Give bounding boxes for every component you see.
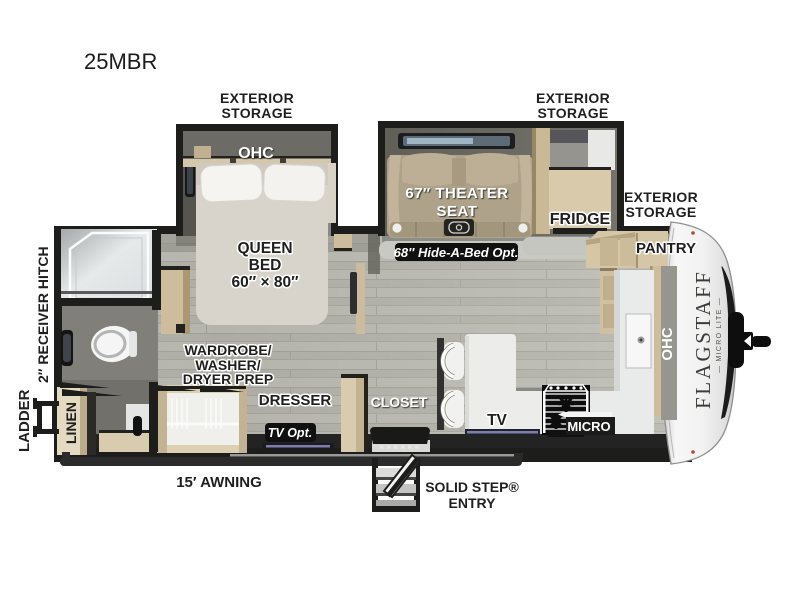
svg-text:60″ × 80″: 60″ × 80″ bbox=[232, 274, 300, 291]
svg-text:68″ Hide-A-Bed Opt.: 68″ Hide-A-Bed Opt. bbox=[394, 245, 519, 260]
svg-text:LADDER: LADDER bbox=[16, 389, 33, 452]
svg-text:BED: BED bbox=[249, 257, 282, 274]
svg-text:EXTERIOR: EXTERIOR bbox=[624, 189, 698, 205]
svg-text:PANTRY: PANTRY bbox=[636, 240, 696, 257]
svg-text:ENTRY: ENTRY bbox=[449, 495, 497, 511]
svg-text:2″ RECEIVER HITCH: 2″ RECEIVER HITCH bbox=[35, 246, 51, 383]
svg-text:FRIDGE: FRIDGE bbox=[550, 211, 611, 228]
svg-text:TV Opt.: TV Opt. bbox=[268, 426, 312, 440]
svg-text:QUEEN: QUEEN bbox=[237, 240, 292, 257]
svg-text:WARDROBE/: WARDROBE/ bbox=[184, 342, 271, 358]
svg-text:15′ AWNING: 15′ AWNING bbox=[176, 474, 262, 491]
svg-text:TV: TV bbox=[487, 412, 507, 429]
svg-text:DRESSER: DRESSER bbox=[259, 392, 332, 409]
svg-text:OHC: OHC bbox=[659, 327, 676, 361]
svg-text:STORAGE: STORAGE bbox=[221, 105, 292, 121]
svg-text:EXTERIOR: EXTERIOR bbox=[536, 90, 610, 106]
svg-text:— MICRO LITE —: — MICRO LITE — bbox=[716, 297, 723, 373]
svg-text:DRYER PREP: DRYER PREP bbox=[183, 371, 274, 387]
svg-text:STORAGE: STORAGE bbox=[537, 105, 608, 121]
svg-text:STORAGE: STORAGE bbox=[625, 204, 696, 220]
svg-text:LINEN: LINEN bbox=[63, 402, 79, 444]
svg-text:25MBR: 25MBR bbox=[84, 49, 157, 74]
svg-text:EXTERIOR: EXTERIOR bbox=[220, 90, 294, 106]
svg-text:OHC: OHC bbox=[238, 145, 274, 162]
svg-text:CLOSET: CLOSET bbox=[371, 394, 428, 410]
svg-text:67″ THEATER: 67″ THEATER bbox=[405, 185, 508, 202]
svg-text:SOLID STEP®: SOLID STEP® bbox=[425, 479, 519, 495]
svg-text:MICRO: MICRO bbox=[567, 419, 610, 434]
svg-text:SEAT: SEAT bbox=[437, 203, 478, 220]
svg-text:FLAGSTAFF: FLAGSTAFF bbox=[691, 269, 715, 409]
